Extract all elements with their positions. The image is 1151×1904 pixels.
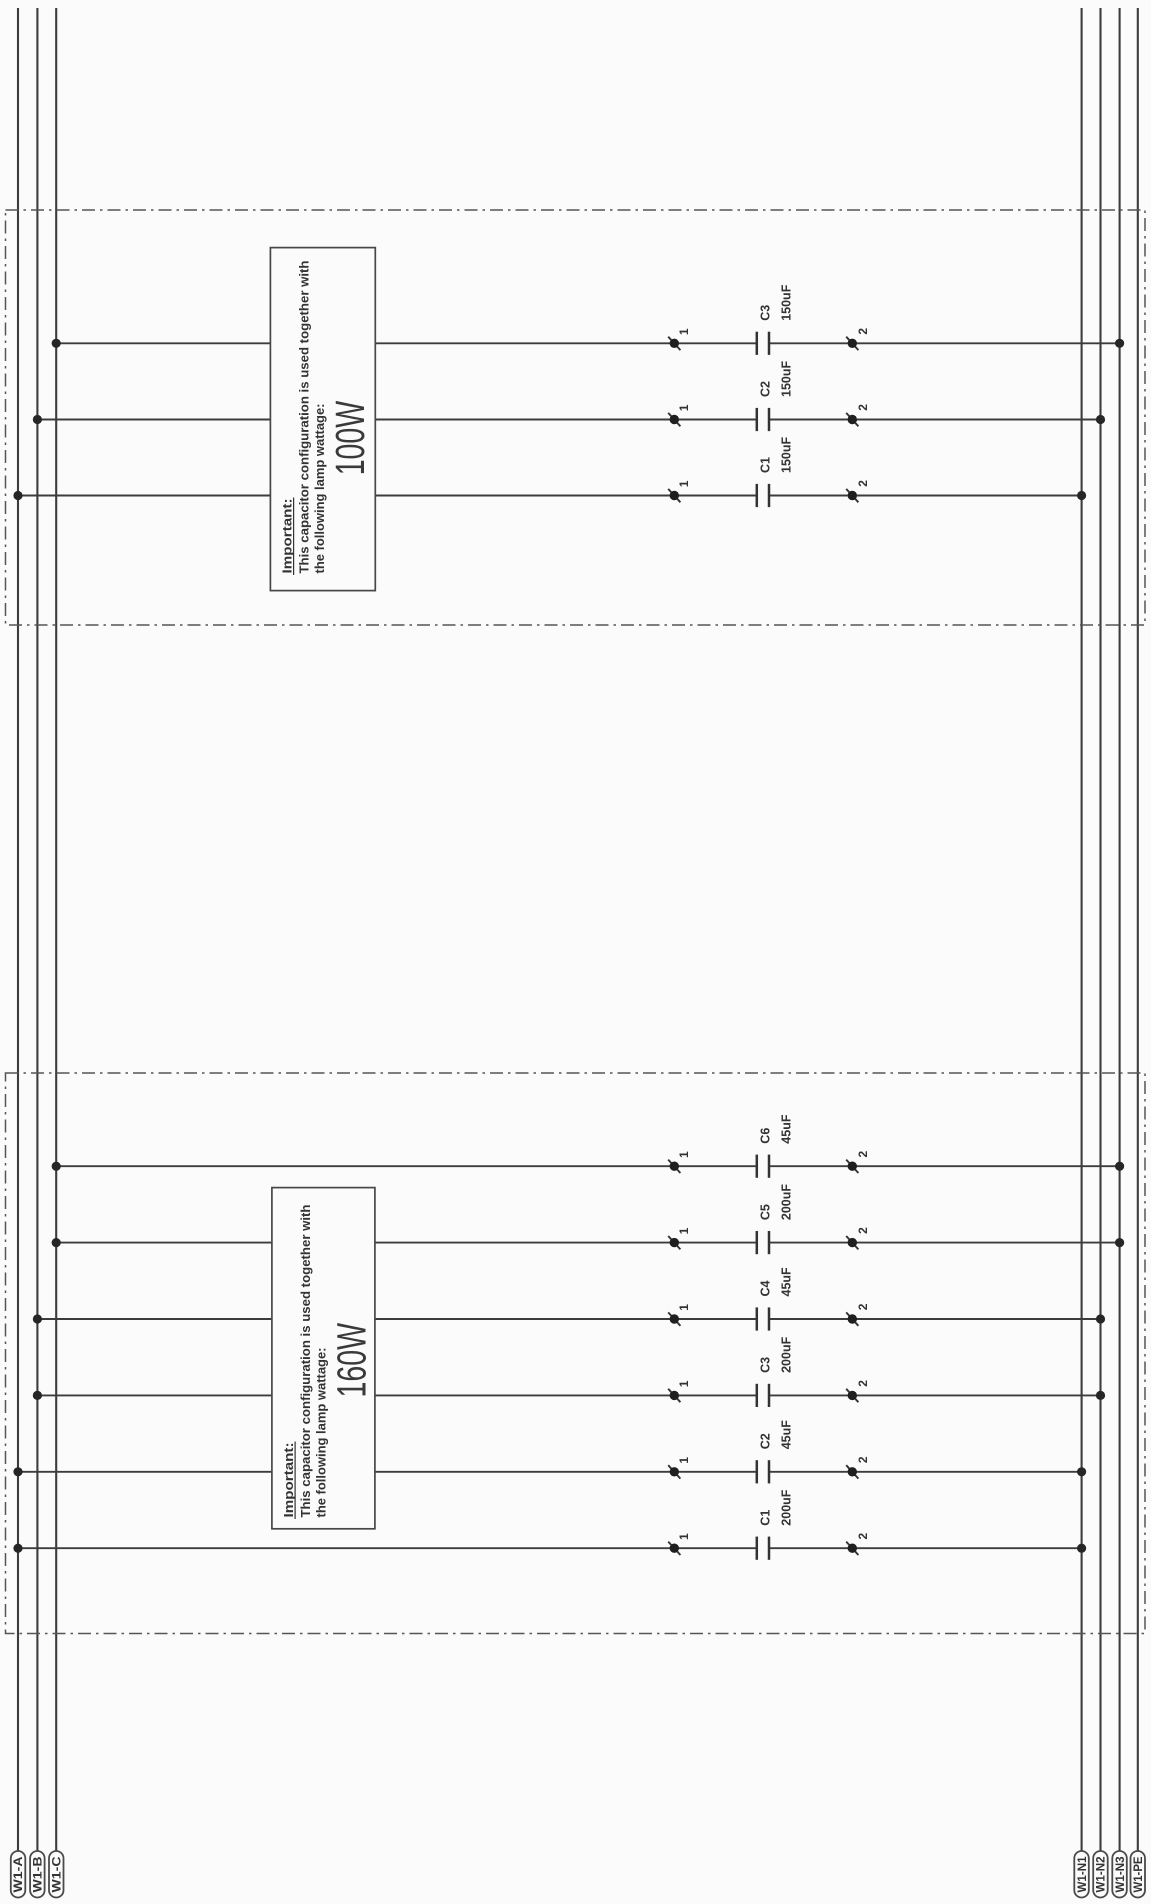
svg-text:2: 2 <box>856 1456 870 1463</box>
svg-text:C5: C5 <box>759 1204 773 1220</box>
svg-text:C3: C3 <box>759 1357 773 1373</box>
svg-text:C2: C2 <box>759 381 773 397</box>
svg-text:2: 2 <box>856 1151 870 1158</box>
svg-text:This capacitor configuration i: This capacitor configuration is used tog… <box>297 261 312 574</box>
svg-text:1: 1 <box>677 328 691 335</box>
svg-text:W1-N3: W1-N3 <box>1115 1857 1127 1893</box>
svg-text:This capacitor configuration i: This capacitor configuration is used tog… <box>298 1205 313 1518</box>
svg-text:150uF: 150uF <box>780 437 794 473</box>
svg-text:45uF: 45uF <box>780 1267 794 1297</box>
svg-text:2: 2 <box>856 1380 870 1387</box>
svg-text:1: 1 <box>677 1380 691 1387</box>
svg-text:2: 2 <box>856 480 870 487</box>
svg-text:Important:: Important: <box>281 1443 296 1518</box>
svg-text:2: 2 <box>856 404 870 411</box>
svg-text:150uF: 150uF <box>780 284 794 320</box>
svg-text:1: 1 <box>677 480 691 487</box>
svg-text:45uF: 45uF <box>780 1114 794 1144</box>
svg-text:45uF: 45uF <box>780 1420 794 1450</box>
svg-text:2: 2 <box>856 328 870 335</box>
svg-text:C1: C1 <box>759 457 773 473</box>
svg-text:Important:: Important: <box>280 499 295 574</box>
svg-text:the following lamp wattage:: the following lamp wattage: <box>312 404 327 574</box>
svg-text:100W: 100W <box>327 400 373 475</box>
svg-text:W1-C: W1-C <box>51 1857 63 1893</box>
svg-text:C1: C1 <box>759 1510 773 1526</box>
svg-text:the following lamp wattage:: the following lamp wattage: <box>314 1348 329 1518</box>
svg-text:2: 2 <box>856 1533 870 1540</box>
svg-text:W1-N1: W1-N1 <box>1077 1856 1089 1893</box>
svg-text:W1-N2: W1-N2 <box>1096 1857 1108 1893</box>
svg-text:1: 1 <box>677 404 691 411</box>
svg-text:200uF: 200uF <box>780 1489 794 1525</box>
svg-text:W1-PE: W1-PE <box>1133 1856 1145 1892</box>
svg-text:C2: C2 <box>759 1433 773 1449</box>
svg-text:1: 1 <box>677 1227 691 1234</box>
svg-text:1: 1 <box>677 1533 691 1540</box>
svg-text:150uF: 150uF <box>780 361 794 397</box>
svg-text:200uF: 200uF <box>780 1336 794 1372</box>
svg-text:2: 2 <box>856 1227 870 1234</box>
svg-text:W1-A: W1-A <box>13 1857 25 1893</box>
svg-text:160W: 160W <box>328 1322 374 1397</box>
svg-text:1: 1 <box>677 1304 691 1311</box>
svg-text:2: 2 <box>856 1303 870 1310</box>
svg-text:1: 1 <box>677 1151 691 1158</box>
svg-text:C6: C6 <box>759 1128 773 1144</box>
svg-text:W1-B: W1-B <box>33 1857 45 1893</box>
svg-text:C3: C3 <box>759 305 773 321</box>
svg-text:1: 1 <box>677 1457 691 1464</box>
svg-text:C4: C4 <box>759 1280 773 1296</box>
svg-text:200uF: 200uF <box>780 1184 794 1220</box>
